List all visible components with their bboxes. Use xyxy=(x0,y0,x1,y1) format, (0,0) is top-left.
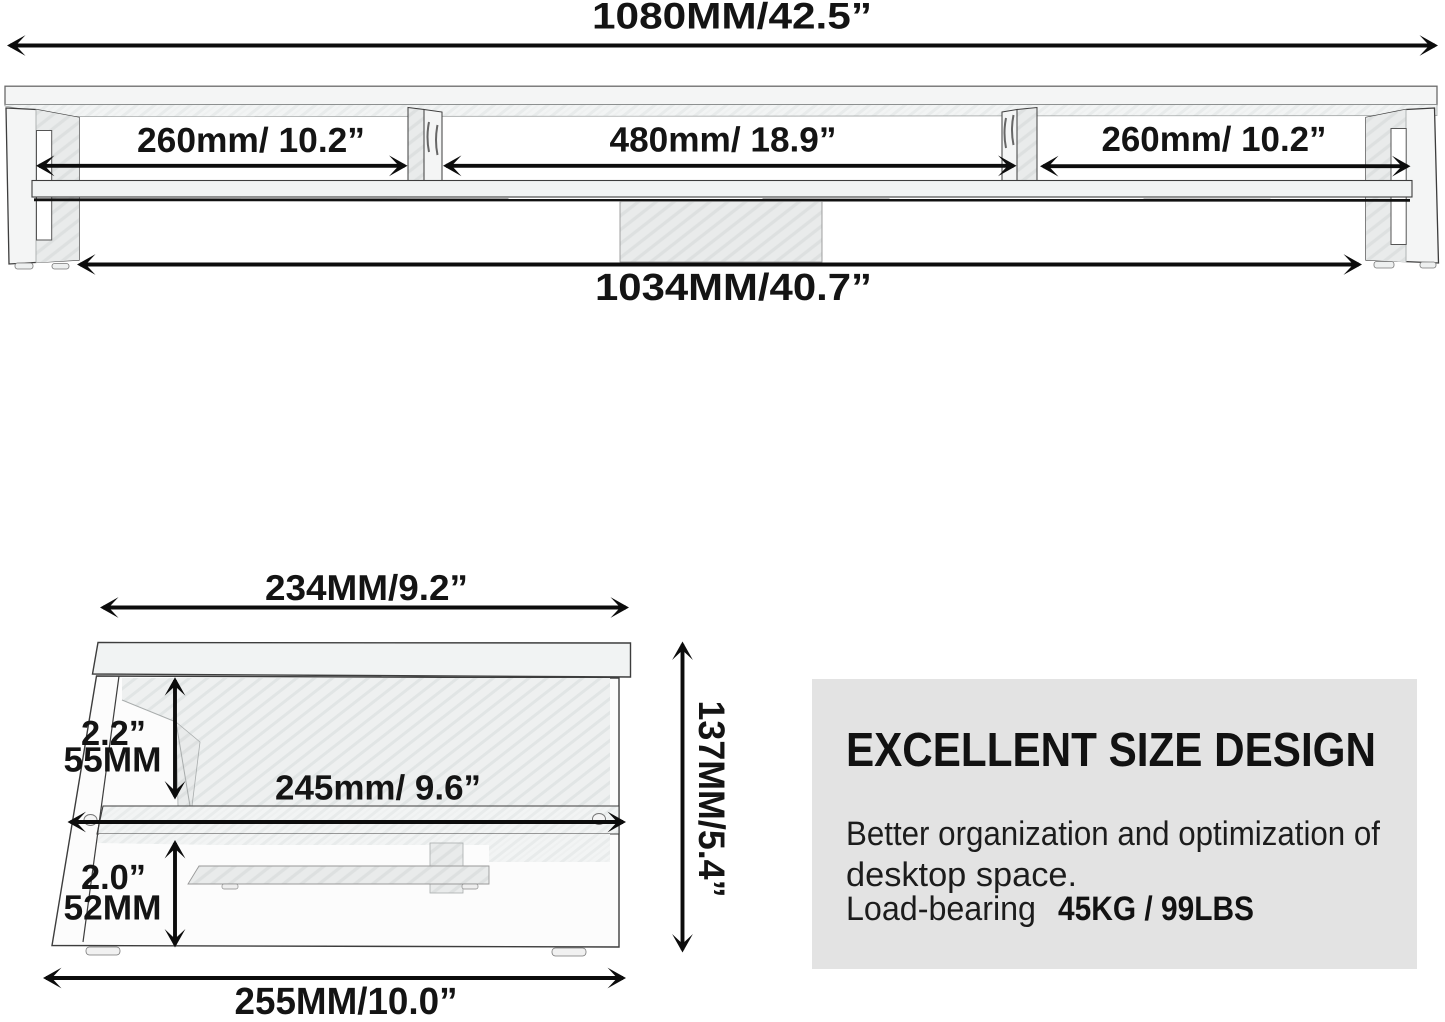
svg-text:Better organization and optimi: Better organization and optimization of xyxy=(846,815,1381,853)
svg-text:desktop space.: desktop space. xyxy=(846,856,1077,894)
svg-text:480mm/ 18.9”: 480mm/ 18.9” xyxy=(610,121,837,160)
svg-text:1080MM/42.5”: 1080MM/42.5” xyxy=(592,0,872,37)
svg-text:137MM/5.4”: 137MM/5.4” xyxy=(691,701,732,898)
svg-text:Load-bearing: Load-bearing xyxy=(846,890,1036,928)
svg-text:234MM/9.2”: 234MM/9.2” xyxy=(265,567,468,608)
svg-text:52MM: 52MM xyxy=(64,889,162,928)
svg-text:260mm/ 10.2”: 260mm/ 10.2” xyxy=(137,121,365,160)
svg-text:260mm/ 10.2”: 260mm/ 10.2” xyxy=(1102,120,1327,159)
svg-text:245mm/ 9.6”: 245mm/ 9.6” xyxy=(275,769,481,808)
svg-text:EXCELLENT SIZE DESIGN: EXCELLENT SIZE DESIGN xyxy=(846,724,1376,777)
svg-text:55MM: 55MM xyxy=(64,741,162,780)
svg-text:1034MM/40.7”: 1034MM/40.7” xyxy=(595,267,872,309)
svg-text:45KG / 99LBS: 45KG / 99LBS xyxy=(1058,890,1254,928)
svg-text:255MM/10.0”: 255MM/10.0” xyxy=(235,981,458,1022)
